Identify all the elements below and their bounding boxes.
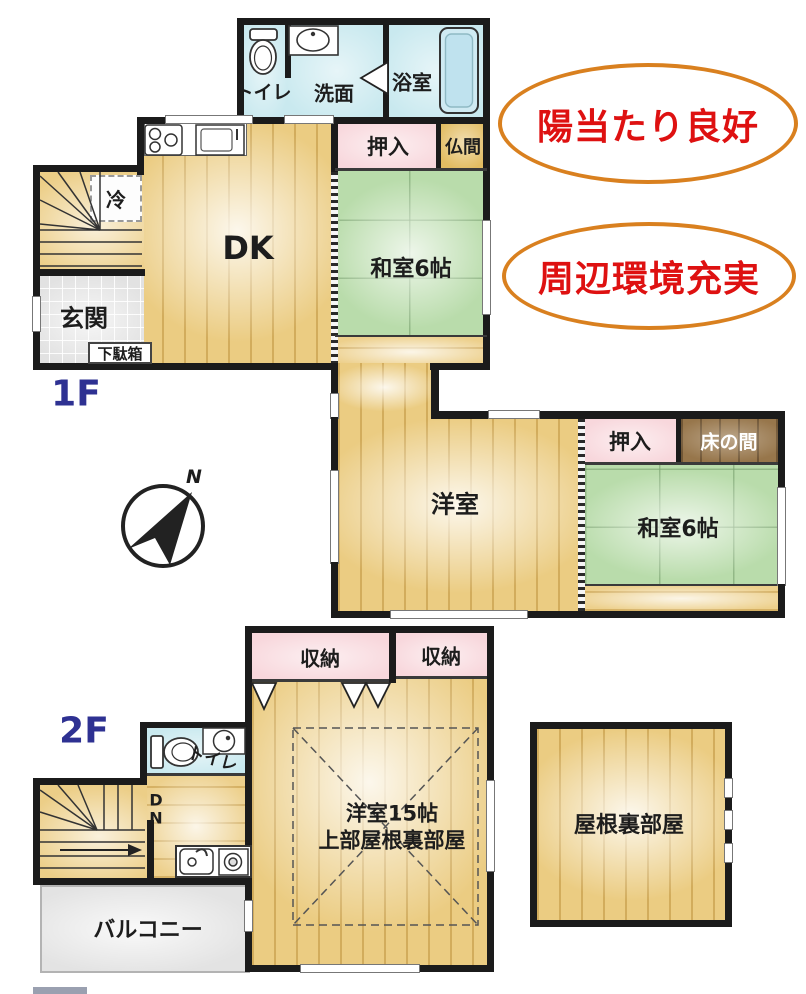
closet-door-line (335, 168, 487, 171)
window-marker (330, 393, 339, 419)
window-marker (165, 115, 253, 124)
room15-line1: 洋室15帖 (319, 801, 466, 828)
wall (778, 411, 785, 489)
storage-left-label: 収納 (300, 643, 340, 672)
floorplan-canvas: 冷 下駄箱 (0, 0, 806, 994)
wall (331, 417, 338, 472)
compass-icon (123, 486, 203, 566)
window-marker (300, 964, 420, 973)
window-marker (330, 470, 339, 564)
down-mark-label: DN (149, 791, 164, 826)
wall (33, 878, 252, 885)
shoe-cabinet-label: 下駄箱 (97, 343, 142, 364)
kitchen-counter (144, 123, 247, 156)
badge-environment: 周辺環境充実 (502, 222, 796, 330)
wall (33, 363, 336, 370)
wall (140, 722, 252, 728)
fridge-label: 冷 (106, 184, 126, 213)
stairs-2f-floor (40, 785, 147, 878)
wall (383, 25, 389, 121)
wall (331, 363, 338, 395)
fridge-box: 冷 (90, 175, 142, 222)
dk-label: DK (222, 229, 273, 267)
wall (33, 778, 147, 785)
corridor-1f (338, 363, 431, 417)
window-marker (724, 843, 733, 863)
wall (483, 18, 490, 370)
washroom-label: 洗面 (314, 78, 354, 107)
wall (331, 117, 338, 172)
wall (389, 626, 396, 683)
closet-door-line (396, 676, 487, 679)
room-western-15 (252, 633, 487, 965)
wall (530, 722, 732, 729)
closet-door-line (252, 679, 389, 682)
wall (33, 778, 40, 885)
wall (331, 562, 338, 618)
storage-right-label: 収納 (421, 641, 461, 670)
room-divider-line (335, 335, 487, 337)
wall (237, 18, 244, 121)
western-1f-label: 洋室 (431, 485, 479, 520)
engawa-strip-mid (585, 586, 778, 611)
cropped-element (33, 987, 87, 994)
window-marker (244, 900, 253, 932)
wall (140, 722, 147, 778)
wall (583, 411, 785, 419)
badge-sunlight: 陽当たり良好 (498, 63, 798, 184)
wall (245, 626, 494, 633)
wall (33, 165, 40, 370)
window-marker (724, 810, 733, 830)
closet-door-line (585, 462, 778, 465)
floor1-tag: 1F (51, 374, 101, 415)
window-marker (390, 610, 528, 619)
room15-label: 洋室15帖 上部屋根裏部屋 (319, 801, 466, 856)
shoe-cabinet: 下駄箱 (88, 342, 152, 364)
window-marker (284, 115, 334, 124)
window-marker (482, 220, 491, 315)
badge-environment-text: 周辺環境充実 (538, 250, 760, 302)
wall (430, 363, 490, 370)
compass-north-label: N (186, 466, 202, 488)
attic-label: 屋根裏部屋 (574, 807, 684, 839)
butsuma-label: 仏間 (445, 133, 481, 159)
window-marker (488, 410, 540, 419)
room-divider-line (585, 584, 778, 586)
wall (676, 418, 681, 465)
room-toilet-1f (240, 21, 287, 121)
wall (530, 722, 537, 927)
room15-line2: 上部屋根裏部屋 (319, 828, 466, 855)
badge-sunlight-text: 陽当たり良好 (537, 98, 759, 150)
entrance-label: 玄関 (60, 299, 108, 334)
wall (147, 820, 154, 878)
tatami-top-label: 和室6帖 (370, 251, 451, 283)
window-marker (777, 487, 786, 586)
wall (436, 120, 441, 170)
tokonoma-label: 床の間 (700, 428, 757, 455)
wall (33, 269, 145, 276)
tatami-mid-label: 和室6帖 (637, 511, 718, 543)
balcony-label: バルコニー (93, 912, 203, 944)
floor2-tag: 2F (59, 711, 109, 752)
window-marker (486, 780, 495, 872)
bath-label: 浴室 (392, 67, 432, 96)
window-marker (32, 296, 41, 332)
laundry-counter (175, 845, 252, 878)
wall (285, 25, 291, 78)
closet-mid-label: 押入 (609, 426, 651, 456)
sliding-door (578, 419, 585, 611)
wall (237, 18, 490, 25)
closet-top-label: 押入 (367, 131, 409, 161)
window-marker (724, 778, 733, 798)
wall (530, 920, 732, 927)
wall (33, 165, 144, 172)
toilet-1f-label: トイレ (234, 78, 291, 105)
